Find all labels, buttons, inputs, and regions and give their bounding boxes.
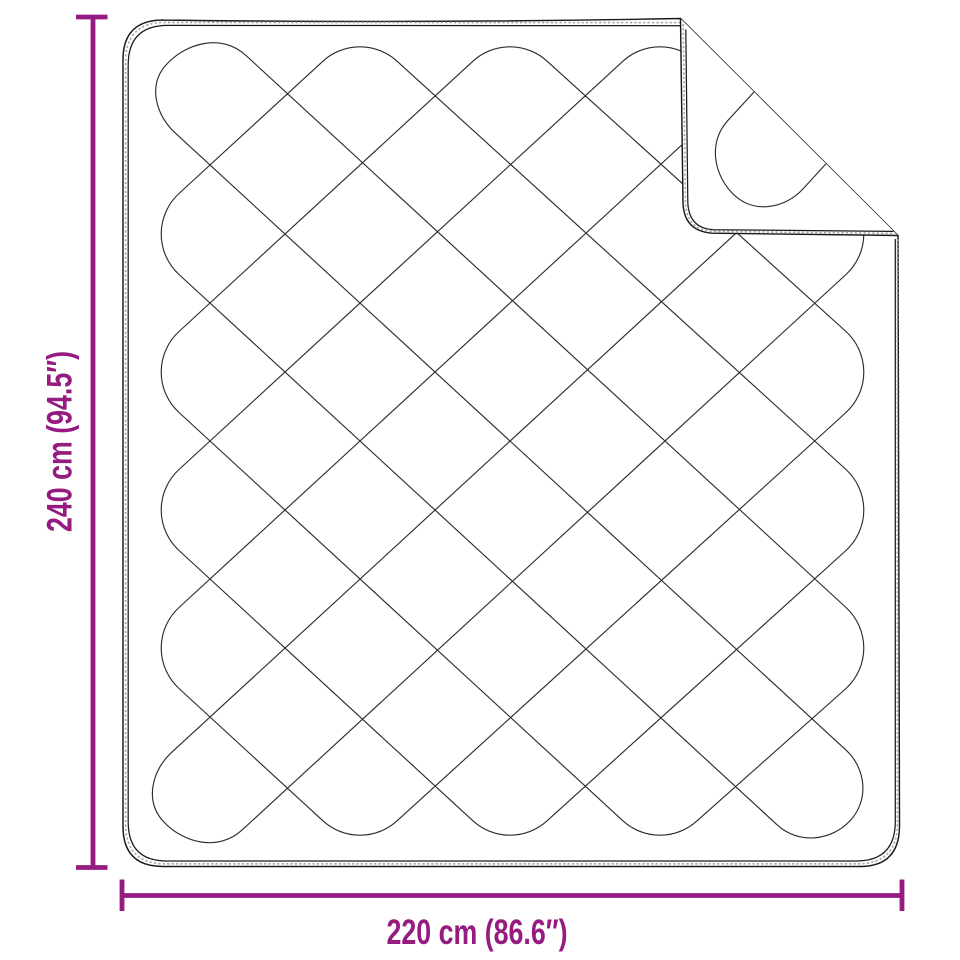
svg-text:220 cm (86.6″): 220 cm (86.6″) (387, 913, 568, 952)
svg-text:240 cm (94.5″): 240 cm (94.5″) (41, 351, 80, 532)
